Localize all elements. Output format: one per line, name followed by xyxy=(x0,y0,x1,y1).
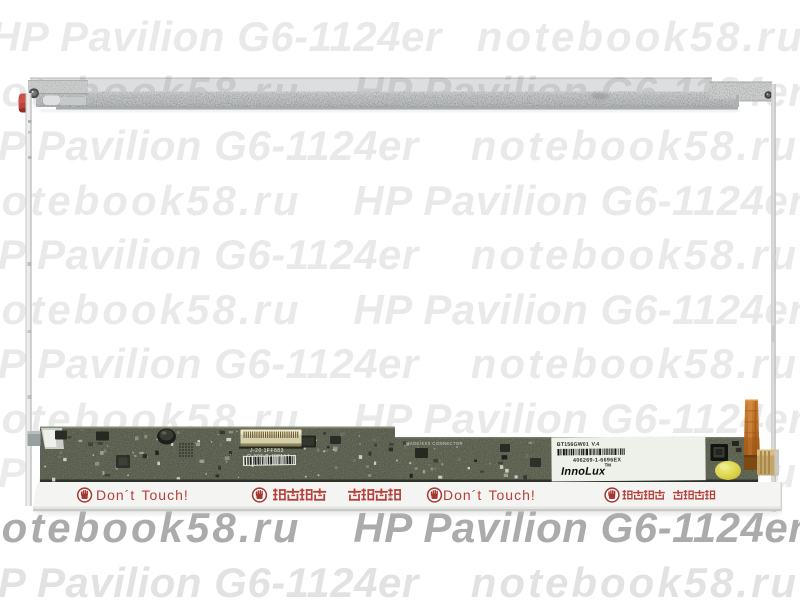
svg-text:MADE/XXX CONNECTOR: MADE/XXX CONNECTOR xyxy=(406,441,463,446)
svg-text:TM: TM xyxy=(605,462,612,467)
svg-text:BT156GW01 V.4: BT156GW01 V.4 xyxy=(557,442,600,448)
svg-text:Don´t: Don´t xyxy=(443,487,482,503)
svg-text:Don´t: Don´t xyxy=(96,487,135,503)
svg-text:Touch!: Touch! xyxy=(142,487,189,503)
svg-text:InnoLux: InnoLux xyxy=(561,466,606,478)
svg-text:406269-1-6696EX: 406269-1-6696EX xyxy=(573,457,621,463)
svg-text:Touch!: Touch! xyxy=(489,487,536,503)
